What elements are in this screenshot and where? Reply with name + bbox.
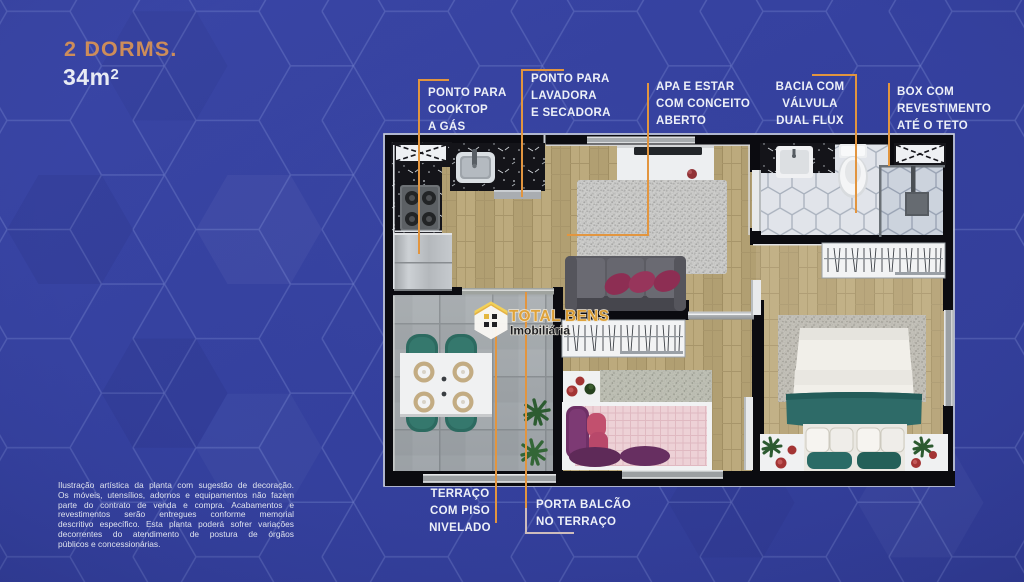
svg-text:TOTAL BENS: TOTAL BENS (509, 308, 609, 325)
svg-text:Imobiliária: Imobiliária (510, 324, 570, 338)
